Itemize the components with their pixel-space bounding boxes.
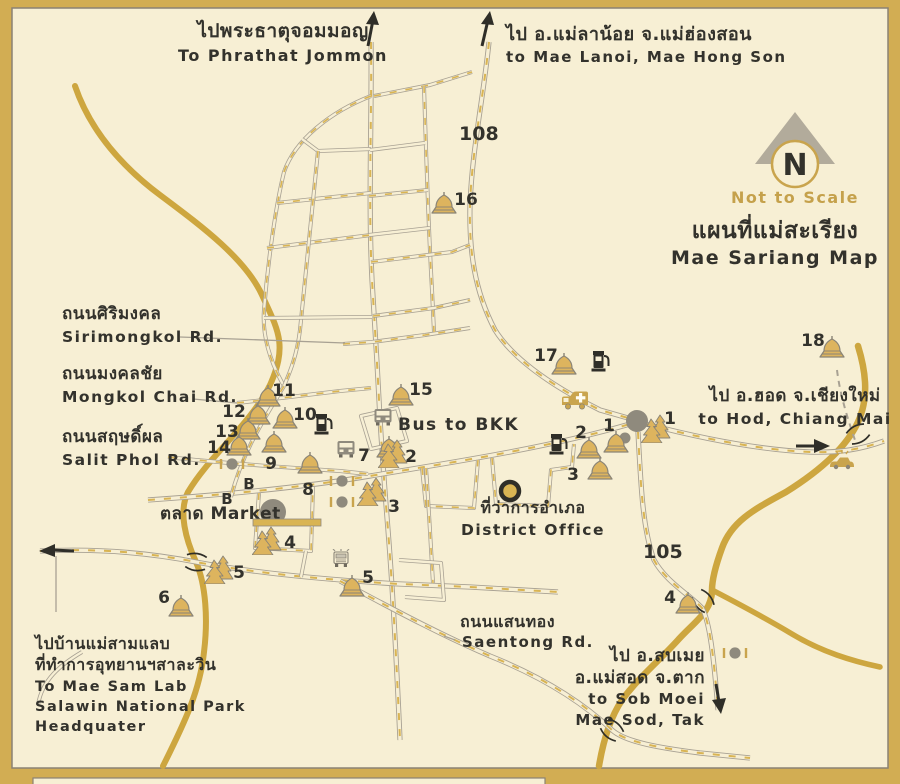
temple-number: 10 bbox=[293, 405, 317, 425]
site-number: 3 bbox=[388, 497, 400, 517]
dest-sob-moei-english-1: to Sob Moei bbox=[588, 690, 705, 708]
roundabout-icon bbox=[626, 410, 648, 432]
temple-number: 3 bbox=[567, 465, 579, 485]
street-saentong-english: Saentong Rd. bbox=[462, 633, 594, 651]
street-salit-phol-english: Salit Phol Rd. bbox=[62, 451, 201, 469]
temple-number: 16 bbox=[454, 190, 478, 210]
temple-number: 9 bbox=[265, 454, 277, 474]
street-sirimongkol-thai: ถนนศิริมงคล bbox=[62, 304, 161, 324]
street-salit-phol-thai: ถนนสฤษดิ์ผล bbox=[62, 423, 163, 447]
district-office-label-thai: ที่ว่าการอำเภอ bbox=[481, 496, 586, 517]
dest-mae-lanoi-english: to Mae Lanoi, Mae Hong Son bbox=[506, 48, 787, 66]
district-office-label-english: District Office bbox=[461, 521, 605, 539]
dest-mae-sam-lab-english-1: To Mae Sam Lab bbox=[35, 679, 188, 695]
dest-mae-sam-lab-english-2: Salawin National Park bbox=[35, 699, 246, 715]
map-title-thai: แผนที่แม่สะเรียง bbox=[692, 213, 858, 244]
temple-number: 14 bbox=[207, 438, 231, 458]
lower-panel-edge bbox=[33, 778, 545, 784]
route-108-label: 108 bbox=[459, 123, 499, 145]
street-saentong-thai: ถนนแสนทอง bbox=[460, 612, 555, 631]
dest-hod-thai: ไป อ.ฮอด จ.เชียงใหม่ bbox=[707, 385, 880, 406]
temple-number: 7 bbox=[358, 446, 370, 466]
dest-mae-sam-lab-thai-1: ไปบ้านแม่สามแลบ bbox=[33, 634, 170, 653]
temple-number: 15 bbox=[409, 380, 433, 400]
bus-stop-letter: B bbox=[243, 475, 254, 493]
market-building bbox=[253, 519, 321, 526]
site-number: 4 bbox=[284, 533, 296, 553]
temple-number: 18 bbox=[801, 331, 825, 351]
bus-to-bkk-label: Bus to BKK bbox=[398, 415, 519, 435]
dest-hod-english: to Hod, Chiang Mai bbox=[698, 410, 891, 428]
compass-letter: N bbox=[782, 148, 807, 183]
site-number: 1 bbox=[664, 409, 676, 429]
dest-phrathat-jommon-english: To Phrathat Jommon bbox=[178, 46, 388, 65]
dest-mae-sam-lab-thai-2: ที่ทำการอุทยานฯสาละวิน bbox=[35, 653, 216, 675]
temple-number: 4 bbox=[664, 588, 676, 608]
temple-number: 6 bbox=[158, 588, 170, 608]
road-surface bbox=[264, 317, 372, 318]
temple-number: 1 bbox=[603, 416, 615, 436]
map-title-english: Mae Sariang Map bbox=[671, 247, 879, 269]
dest-phrathat-jommon-thai: ไปพระธาตุจอมมอญ bbox=[195, 19, 368, 43]
dest-sob-moei-english-2: Mae Sod, Tak bbox=[575, 711, 705, 729]
temple-number: 17 bbox=[534, 346, 558, 366]
site-number: 5 bbox=[233, 563, 245, 583]
dest-sob-moei-thai-1: ไป อ.สบเมย bbox=[608, 645, 705, 666]
route-105-label: 105 bbox=[643, 541, 683, 563]
street-mongkol-chai-thai: ถนนมงคลชัย bbox=[62, 364, 163, 384]
mae-sariang-map-page: 12345678910111213141516171812345BB N Not… bbox=[0, 0, 900, 784]
dest-mae-sam-lab-english-3: Headquater bbox=[35, 719, 147, 735]
dest-sob-moei-thai-2: อ.แม่สอด จ.ตาก bbox=[575, 668, 705, 688]
street-mongkol-chai-english: Mongkol Chai Rd. bbox=[62, 388, 238, 406]
street-sirimongkol-english: Sirimongkol Rd. bbox=[62, 328, 223, 346]
temple-number: 5 bbox=[362, 568, 374, 588]
temple-number: 2 bbox=[575, 423, 587, 443]
temple-number: 8 bbox=[302, 480, 314, 500]
dest-mae-lanoi-thai: ไป อ.แม่ลาน้อย จ.แม่ฮ่องสอน bbox=[504, 23, 752, 45]
map-canvas: 12345678910111213141516171812345BB N Not… bbox=[0, 0, 900, 784]
site-number: 2 bbox=[405, 447, 417, 467]
not-to-scale-label: Not to Scale bbox=[731, 188, 859, 207]
temple-number: 11 bbox=[272, 381, 296, 401]
